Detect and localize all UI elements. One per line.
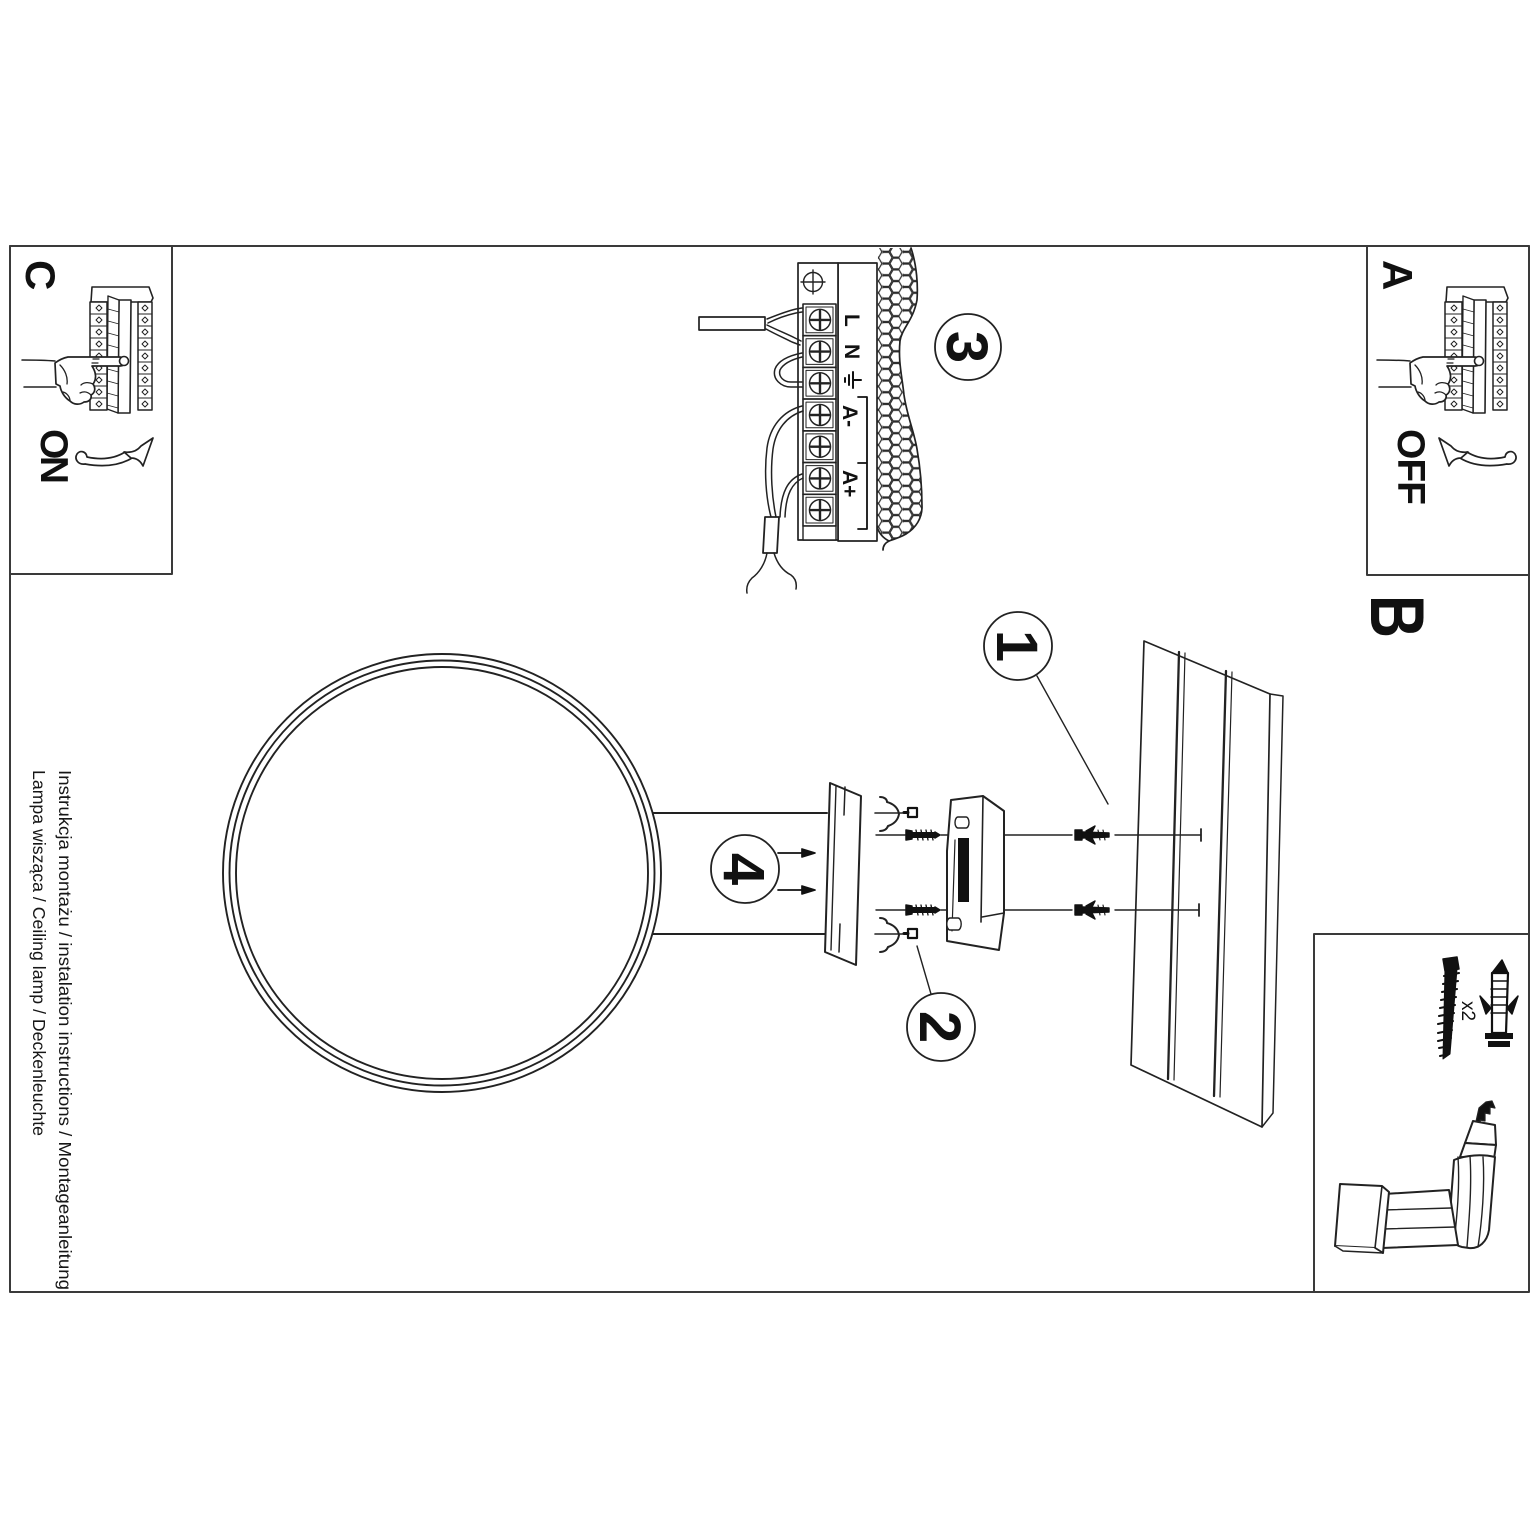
svg-text:4: 4 (711, 853, 776, 885)
svg-text:ON: ON (32, 429, 75, 484)
svg-text:OFF: OFF (1389, 429, 1432, 505)
svg-text:Lampa wisząca / Ceiling lamp /: Lampa wisząca / Ceiling lamp / Deckenleu… (29, 770, 49, 1136)
svg-text:3: 3 (934, 331, 999, 363)
svg-text:A+: A+ (838, 470, 861, 497)
svg-text:A: A (1374, 260, 1421, 290)
svg-text:2: 2 (907, 1011, 972, 1043)
svg-text:N: N (840, 344, 863, 359)
svg-text:A-: A- (838, 405, 861, 427)
svg-text:B: B (1354, 595, 1439, 638)
svg-text:L: L (840, 314, 863, 327)
svg-text:x2: x2 (1457, 1001, 1478, 1021)
svg-text:1: 1 (984, 630, 1049, 662)
svg-text:Instrukcja montażu / instalati: Instrukcja montażu / instalation instruc… (55, 770, 75, 1290)
svg-text:C: C (17, 260, 64, 290)
